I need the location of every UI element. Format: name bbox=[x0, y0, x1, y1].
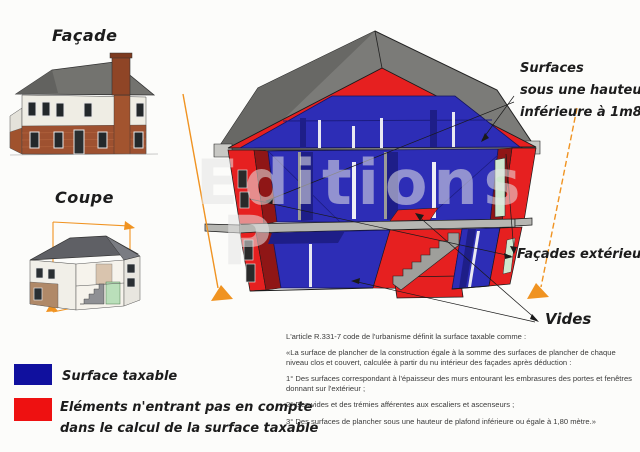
section-plane-left bbox=[183, 94, 233, 301]
upper-storey bbox=[228, 148, 536, 226]
legal-item-3: 3° Des surfaces de plancher sous une hau… bbox=[286, 417, 640, 427]
annotation-surfaces-line2: sous une hauteur bbox=[520, 80, 640, 102]
legend-swatch-non-taxable bbox=[14, 398, 52, 421]
section-plane-right bbox=[527, 108, 577, 299]
legal-definition: «La surface de plancher de la constructi… bbox=[286, 348, 640, 368]
surface-taxable-diagram: Editions P Façade Coupe bbox=[0, 0, 640, 452]
legal-text-block: L'article R.331-7 code de l'urbanisme dé… bbox=[286, 332, 640, 433]
annotation-vides: Vides bbox=[545, 310, 591, 328]
coupe-illustration bbox=[18, 212, 173, 324]
legend-label-non-taxable: Eléments n'entrant pas en compte dans le… bbox=[60, 397, 318, 439]
facade-title: Façade bbox=[52, 26, 117, 45]
chimney bbox=[112, 56, 130, 95]
coupe-green-door bbox=[106, 282, 120, 304]
legend-label-non-taxable-line2: dans le calcul de la surface taxable bbox=[60, 418, 318, 439]
annotation-surfaces-line3: inférieure à 1m80 bbox=[520, 102, 640, 124]
legend-label-taxable: Surface taxable bbox=[62, 366, 177, 387]
legal-item-1: 1° Des surfaces correspondant à l'épaiss… bbox=[286, 374, 640, 394]
legal-item-2: 2° Des vides et des trémies afférentes a… bbox=[286, 400, 640, 410]
legend-label-non-taxable-line1: Eléments n'entrant pas en compte bbox=[60, 397, 318, 418]
legal-intro: L'article R.331-7 code de l'urbanisme dé… bbox=[286, 332, 640, 342]
annotation-facades: Façades extérieures bbox=[517, 244, 640, 266]
annotation-surfaces-line1: Surfaces bbox=[520, 58, 640, 80]
legend-swatch-taxable bbox=[14, 364, 52, 385]
annotation-surfaces: Surfaces sous une hauteur inférieure à 1… bbox=[520, 58, 640, 124]
facade-illustration bbox=[8, 48, 168, 166]
coupe-title: Coupe bbox=[55, 188, 114, 207]
